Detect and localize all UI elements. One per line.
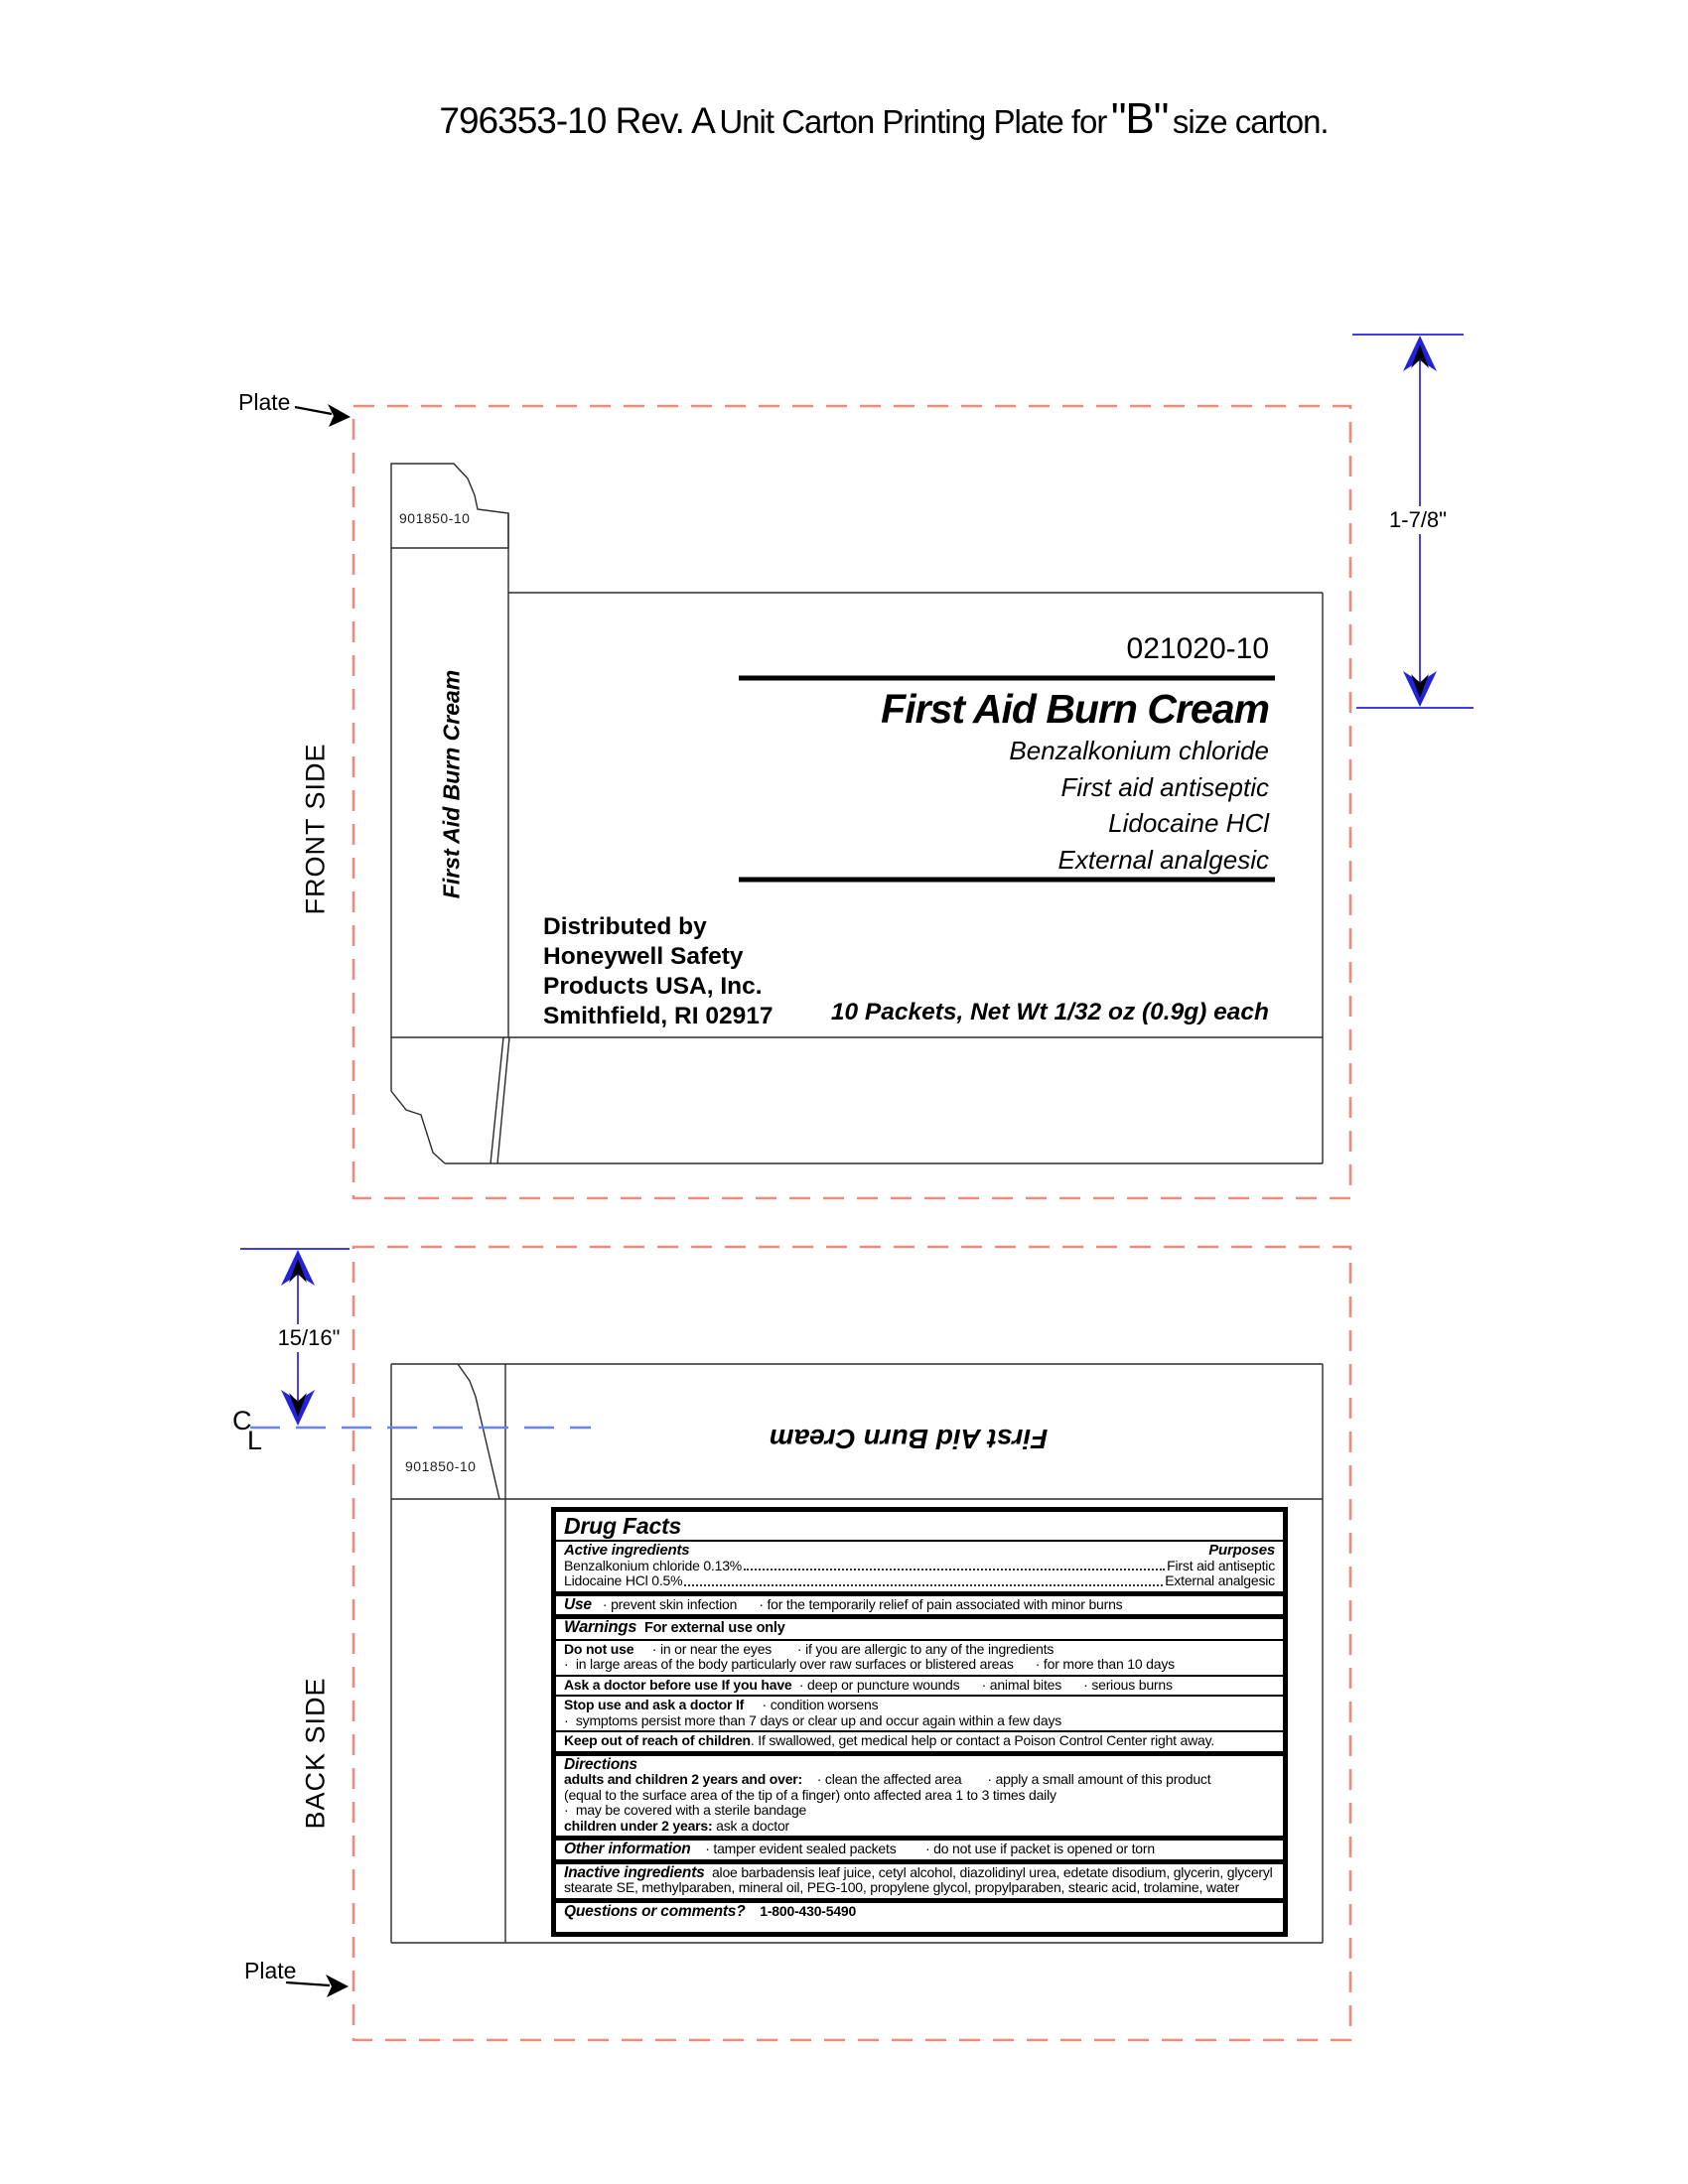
- questions-section: Questions or comments? 1-800-430-5490: [556, 1898, 1283, 1922]
- front-side-label: FRONT SIDE: [301, 743, 332, 914]
- active-name: Lidocaine HCl 0.5%: [564, 1573, 682, 1589]
- back-flap-code: 901850-10: [405, 1458, 476, 1474]
- other-information-section: Other information · tamper evident seale…: [556, 1836, 1283, 1859]
- directions-line4-label: children under 2 years:: [564, 1818, 712, 1834]
- back-panel-title: First Aid Burn Cream: [770, 1423, 1049, 1454]
- distributor-line-1: Distributed by: [543, 912, 773, 942]
- height-dimension-label: 1-7/8": [1384, 506, 1452, 534]
- questions-label: Questions or comments?: [564, 1903, 746, 1920]
- directions-line4-text: ask a doctor: [712, 1818, 789, 1834]
- product-subtitle-1: Benzalkonium chloride: [695, 733, 1269, 769]
- other-information-text: · tamper evident sealed packets · do not…: [691, 1841, 1155, 1856]
- distributor-line-3: Products USA, Inc.: [543, 972, 773, 1002]
- stop-use-section: Stop use and ask a doctor If · condition…: [556, 1695, 1283, 1730]
- active-purpose: First aid antiseptic: [1167, 1559, 1275, 1574]
- product-subtitle-4: External analgesic: [695, 842, 1269, 879]
- back-flap-cut: [458, 1364, 499, 1499]
- directions-line1-label: adults and children 2 years and over:: [564, 1771, 802, 1787]
- stop-use-text: · condition worsens: [744, 1697, 878, 1712]
- ask-doctor-section: Ask a doctor before use If you have · de…: [556, 1675, 1283, 1696]
- do-not-use-label: Do not use: [564, 1641, 633, 1657]
- use-text: · prevent skin infection · for the tempo…: [592, 1596, 1123, 1612]
- active-ingredient-row: Lidocaine HCl 0.5% External analgesic: [564, 1573, 1275, 1589]
- stop-use-label: Stop use and ask a doctor If: [564, 1697, 744, 1712]
- keep-out-section: Keep out of reach of children. If swallo…: [556, 1730, 1283, 1751]
- document-number: 796353-10 Rev. A: [439, 100, 714, 141]
- keep-out-label: Keep out of reach of children: [564, 1732, 751, 1748]
- plate-label-top: Plate: [238, 389, 290, 416]
- leader-dots: [684, 1573, 1163, 1586]
- distributor-line-2: Honeywell Safety: [543, 942, 773, 972]
- drug-facts-title: Drug Facts: [556, 1512, 1283, 1540]
- warnings-note: For external use only: [636, 1620, 784, 1636]
- active-name: Benzalkonium chloride 0.13%: [564, 1559, 742, 1574]
- other-information-label: Other information: [564, 1841, 691, 1857]
- front-flap-code: 901850-10: [399, 510, 470, 526]
- drug-facts-box: Drug Facts Active ingredients Purposes B…: [551, 1507, 1288, 1937]
- do-not-use-section: Do not use · in or near the eyes · if yo…: [556, 1639, 1283, 1675]
- directions-section: Directions adults and children 2 years a…: [556, 1751, 1283, 1837]
- carton-size-code: "B": [1111, 94, 1169, 143]
- purposes-header: Purposes: [1208, 1543, 1275, 1559]
- ask-doctor-text: · deep or puncture wounds · animal bites…: [792, 1677, 1173, 1693]
- ask-doctor-label: Ask a doctor before use If you have: [564, 1677, 792, 1693]
- active-ingredient-row: Benzalkonium chloride 0.13% First aid an…: [564, 1559, 1275, 1574]
- title-suffix: size carton.: [1173, 103, 1329, 140]
- directions-line2: (equal to the surface area of the tip of…: [564, 1788, 1275, 1804]
- questions-phone: 1-800-430-5490: [746, 1903, 857, 1919]
- sheet-title: 796353-10 Rev. A Unit Carton Printing Pl…: [439, 94, 1328, 144]
- directions-label: Directions: [564, 1757, 1275, 1773]
- net-contents: 10 Packets, Net Wt 1/32 oz (0.9g) each: [695, 999, 1269, 1026]
- warnings-label: Warnings: [564, 1618, 636, 1636]
- active-ingredients-section: Active ingredients Purposes Benzalkonium…: [556, 1540, 1283, 1591]
- do-not-use-text: · in or near the eyes · if you are aller…: [633, 1641, 1054, 1657]
- centerline-symbol-l: L: [247, 1426, 262, 1456]
- front-spine-title: First Aid Burn Cream: [439, 670, 466, 898]
- use-section: Use · prevent skin infection · for the t…: [556, 1591, 1283, 1615]
- use-label: Use: [564, 1596, 592, 1613]
- directions-line1-text: · clean the affected area · apply a smal…: [802, 1771, 1210, 1787]
- printing-plate-drawing: 796353-10 Rev. A Unit Carton Printing Pl…: [0, 0, 1688, 2184]
- do-not-use-line2: · in large areas of the body particularl…: [564, 1657, 1275, 1673]
- active-ingredients-header: Active ingredients: [564, 1543, 689, 1559]
- product-subtitle-3: Lidocaine HCl: [695, 805, 1269, 842]
- front-top-flap: [391, 464, 508, 548]
- warnings-header-section: Warnings For external use only: [556, 1614, 1283, 1639]
- offset-dimension-label: 15/16": [273, 1324, 346, 1352]
- front-bottom-flap: [391, 1037, 445, 1163]
- leader-dots: [744, 1559, 1165, 1571]
- keep-out-text: . If swallowed, get medical help or cont…: [751, 1732, 1214, 1748]
- back-side-label: BACK SIDE: [301, 1677, 332, 1829]
- active-purpose: External analgesic: [1165, 1573, 1275, 1589]
- directions-line3: · may be covered with a sterile bandage: [564, 1803, 1275, 1819]
- front-panel-code: 021020-10: [794, 632, 1269, 666]
- product-title: First Aid Burn Cream: [695, 685, 1269, 733]
- inactive-ingredients-section: Inactive ingredients aloe barbadensis le…: [556, 1859, 1283, 1898]
- plate-label-bottom: Plate: [244, 1958, 296, 1984]
- product-subtitle-2: First aid antiseptic: [695, 769, 1269, 806]
- title-middle: Unit Carton Printing Plate for: [719, 103, 1106, 140]
- stop-use-line2: · symptoms persist more than 7 days or c…: [564, 1713, 1275, 1729]
- inactive-ingredients-label: Inactive ingredients: [564, 1864, 705, 1881]
- front-product-block: First Aid Burn Cream Benzalkonium chlori…: [695, 685, 1269, 878]
